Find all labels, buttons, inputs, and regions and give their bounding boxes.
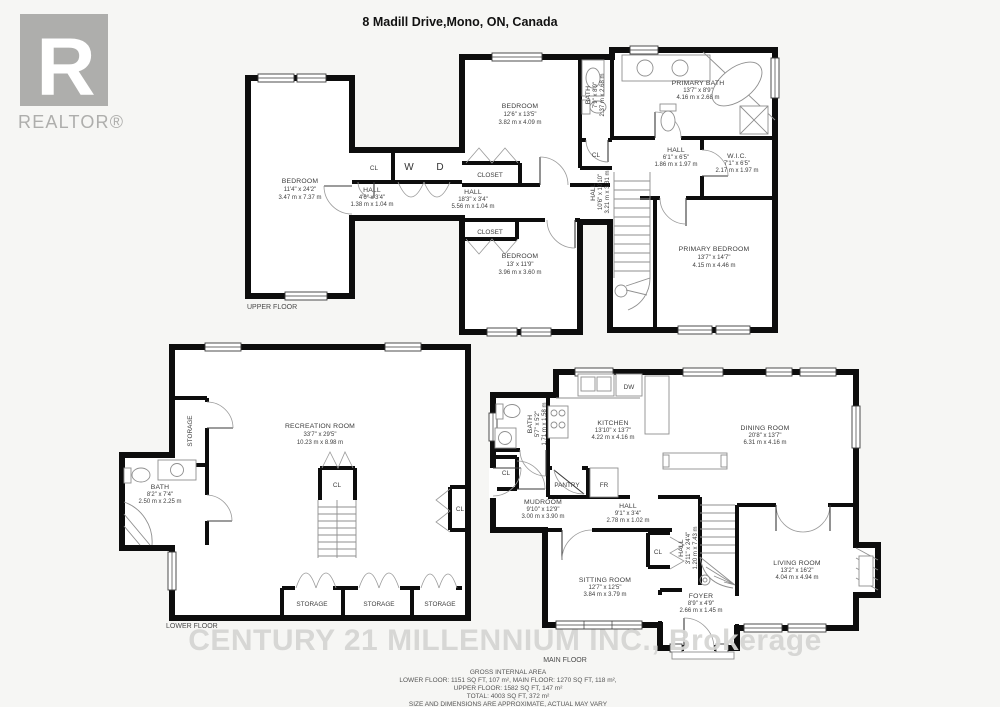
window	[800, 368, 836, 376]
window	[297, 74, 326, 82]
svg-text:4.15 m x 4.46 m: 4.15 m x 4.46 m	[692, 263, 735, 269]
svg-text:8'9" x 4'9": 8'9" x 4'9"	[688, 601, 714, 607]
window	[716, 326, 750, 334]
dryer-label: D	[436, 162, 443, 173]
svg-text:4.16 m x 2.68 m: 4.16 m x 2.68 m	[676, 95, 719, 101]
svg-text:7'1" x 6'5": 7'1" x 6'5"	[724, 161, 750, 167]
svg-text:PRIMARY BATH: PRIMARY BATH	[672, 80, 725, 87]
svg-text:HALL: HALL	[590, 183, 597, 201]
svg-text:12'7" x 12'5": 12'7" x 12'5"	[589, 585, 622, 591]
closet-label: CLOSET	[477, 229, 503, 236]
svg-text:1.20 m x 7.43 m: 1.20 m x 7.43 m	[693, 526, 699, 569]
svg-text:BEDROOM: BEDROOM	[502, 253, 539, 260]
window	[492, 53, 542, 61]
room-label-bedroom-top: BEDROOM 12'6" x 13'5" 3.82 m x 4.09 m	[498, 103, 541, 126]
floor-plan-page: R REALTOR® 8 Madill Drive,Mono, ON, Cana…	[0, 0, 1000, 707]
svg-text:HALL: HALL	[464, 189, 482, 196]
closet-label: CL	[333, 482, 342, 489]
svg-text:HALL: HALL	[678, 539, 685, 557]
svg-text:20'8" x 13'7": 20'8" x 13'7"	[749, 433, 782, 439]
svg-text:18'3" x 3'4": 18'3" x 3'4"	[458, 197, 488, 203]
pantry-label: PANTRY	[554, 482, 580, 489]
realtor-logo-r: R	[36, 22, 95, 113]
storage-label: STORAGE	[363, 601, 394, 608]
svg-text:13'10" x 13'7": 13'10" x 13'7"	[595, 428, 631, 434]
svg-text:HALL: HALL	[619, 503, 637, 510]
footer-line-1: LOWER FLOOR: 1151 SQ FT, 107 m², MAIN FL…	[399, 677, 616, 684]
svg-text:5.56 m x 1.04 m: 5.56 m x 1.04 m	[451, 204, 494, 210]
svg-text:13'7" x 8'9": 13'7" x 8'9"	[683, 88, 713, 94]
svg-text:10'6" x 10'10": 10'6" x 10'10"	[598, 174, 604, 210]
svg-text:2.37 m x 2.68 m: 2.37 m x 2.68 m	[600, 73, 606, 116]
storage-label: STORAGE	[296, 601, 327, 608]
window	[678, 326, 712, 334]
storage-label: STORAGE	[424, 601, 455, 608]
footer-disclaimer: SIZE AND DIMENSIONS ARE APPROXIMATE, ACT…	[409, 701, 608, 707]
upper-floor-label: UPPER FLOOR	[247, 304, 297, 311]
realtor-logo-icon: R REALTOR®	[18, 14, 124, 132]
svg-text:1.71 m x 1.58 m: 1.71 m x 1.58 m	[542, 402, 548, 445]
svg-text:RECREATION ROOM: RECREATION ROOM	[285, 423, 355, 430]
svg-text:13' x 11'9": 13' x 11'9"	[507, 262, 534, 268]
svg-text:3.96 m x 3.60 m: 3.96 m x 3.60 m	[498, 270, 541, 276]
buffet-counter	[663, 453, 727, 469]
closet-label: CL	[370, 165, 379, 172]
washer-label: W	[404, 162, 414, 173]
svg-text:KITCHEN: KITCHEN	[597, 420, 628, 427]
svg-text:13'7" x 14'7": 13'7" x 14'7"	[698, 255, 731, 261]
svg-text:LIVING ROOM: LIVING ROOM	[773, 560, 821, 567]
svg-text:9'10" x 12'9": 9'10" x 12'9"	[527, 507, 560, 513]
vanity-sink-icon	[158, 460, 196, 480]
closet-label: CL	[592, 152, 601, 159]
window	[168, 552, 176, 590]
window	[385, 343, 421, 351]
window	[205, 343, 241, 351]
svg-text:8'2" x 7'4": 8'2" x 7'4"	[147, 492, 173, 498]
svg-text:3.84 m x 3.79 m: 3.84 m x 3.79 m	[583, 592, 626, 598]
double-sink-icon	[622, 55, 710, 81]
vanity-sink-icon	[495, 428, 516, 448]
kitchen-sink-icon	[578, 374, 614, 396]
svg-text:4.22 m x 4.16 m: 4.22 m x 4.16 m	[591, 435, 634, 441]
svg-text:STORAGE: STORAGE	[187, 415, 194, 446]
svg-text:6'1" x 6'5": 6'1" x 6'5"	[663, 155, 689, 161]
window	[285, 292, 327, 300]
svg-text:BEDROOM: BEDROOM	[502, 103, 539, 110]
svg-text:BATH: BATH	[151, 484, 169, 491]
window	[771, 58, 779, 98]
svg-text:3.21 m x 3.31 m: 3.21 m x 3.31 m	[605, 170, 611, 213]
shower-icon	[740, 106, 768, 134]
svg-text:SITTING ROOM: SITTING ROOM	[579, 577, 631, 584]
footer-area-summary: GROSS INTERNAL AREA LOWER FLOOR: 1151 SQ…	[399, 669, 616, 707]
svg-text:2.17 m x 1.97 m: 2.17 m x 1.97 m	[715, 168, 758, 174]
svg-text:13'2" x 16'2": 13'2" x 16'2"	[781, 568, 814, 574]
window	[487, 328, 517, 336]
toilet-icon	[660, 104, 676, 131]
svg-text:4.04 m x 4.94 m: 4.04 m x 4.94 m	[775, 575, 818, 581]
window	[258, 74, 294, 82]
lower-floor: STORAGE BATH 8'2" x 7'4" 2.50 m x 2.25 m…	[122, 343, 468, 630]
svg-text:3.82 m x 4.09 m: 3.82 m x 4.09 m	[498, 120, 541, 126]
brokerage-watermark: CENTURY 21 MILLENNIUM INC., Brokerage	[188, 624, 822, 657]
closet-label: CLOSET	[477, 172, 503, 179]
svg-text:33'7" x 29'5": 33'7" x 29'5"	[304, 432, 337, 438]
svg-text:1.38 m x 1.04 m: 1.38 m x 1.04 m	[350, 202, 393, 208]
svg-text:BATH: BATH	[585, 86, 592, 104]
room-label-mudroom: MUDROOM 9'10" x 12'9" 3.00 m x 3.90 m	[521, 499, 564, 520]
room-label-storage-side: STORAGE	[187, 415, 194, 446]
window	[630, 46, 658, 54]
window	[766, 368, 792, 376]
svg-text:2.78 m x 1.02 m: 2.78 m x 1.02 m	[606, 518, 649, 524]
window	[683, 368, 723, 376]
upper-floor: BEDROOM 11'4" x 24'2" 3.47 m x 7.37 m CL…	[247, 46, 779, 336]
svg-text:6.31 m x 4.16 m: 6.31 m x 4.16 m	[743, 440, 786, 446]
page-title: 8 Madill Drive,Mono, ON, Canada	[362, 15, 558, 29]
main-floor-label: MAIN FLOOR	[543, 657, 587, 664]
window	[852, 406, 860, 448]
footer-heading: GROSS INTERNAL AREA	[470, 669, 547, 676]
svg-text:1.86 m x 1.97 m: 1.86 m x 1.97 m	[654, 162, 697, 168]
svg-text:9'1" x 3'4": 9'1" x 3'4"	[615, 511, 641, 517]
toilet-icon	[124, 468, 150, 483]
main-floor: KITCHEN 13'10" x 13'7" 4.22 m x 4.16 m D…	[489, 368, 878, 664]
svg-text:4'6" x 3'4": 4'6" x 3'4"	[359, 195, 385, 201]
room-label-kitchen: KITCHEN 13'10" x 13'7" 4.22 m x 4.16 m	[591, 420, 634, 441]
floor-plan-canvas: R REALTOR® 8 Madill Drive,Mono, ON, Cana…	[0, 0, 1000, 707]
toilet-icon	[496, 404, 520, 419]
closet-label: CL	[654, 549, 663, 556]
svg-text:3.47 m x 7.37 m: 3.47 m x 7.37 m	[278, 195, 321, 201]
svg-text:FOYER: FOYER	[689, 593, 713, 600]
svg-text:BEDROOM: BEDROOM	[282, 178, 319, 185]
window	[521, 328, 551, 336]
svg-text:DINING ROOM: DINING ROOM	[740, 425, 789, 432]
realtor-logo-label: REALTOR®	[18, 112, 124, 132]
svg-text:2.50 m x 2.25 m: 2.50 m x 2.25 m	[138, 499, 181, 505]
svg-text:HALL: HALL	[363, 187, 381, 194]
svg-text:HALL: HALL	[667, 147, 685, 154]
dishwasher-label: DW	[624, 384, 636, 391]
svg-text:7'9" x 8'9": 7'9" x 8'9"	[593, 82, 599, 108]
footer-line-2: UPPER FLOOR: 1582 SQ FT, 147 m²	[454, 685, 564, 692]
svg-text:W.I.C.: W.I.C.	[727, 153, 747, 160]
footer-line-3: TOTAL: 4003 SQ FT, 372 m²	[467, 693, 550, 700]
svg-text:BATH: BATH	[527, 415, 534, 433]
svg-text:3'11" x 24'4": 3'11" x 24'4"	[686, 532, 692, 564]
svg-text:PRIMARY BEDROOM: PRIMARY BEDROOM	[679, 246, 750, 253]
svg-text:10.23 m x 8.98 m: 10.23 m x 8.98 m	[297, 440, 343, 446]
svg-text:5'7" x 5'2": 5'7" x 5'2"	[535, 411, 541, 437]
svg-text:11'4" x 24'2": 11'4" x 24'2"	[284, 187, 316, 193]
fridge-label: FR	[600, 482, 609, 489]
stove-icon	[548, 406, 568, 438]
svg-text:MUDROOM: MUDROOM	[524, 499, 562, 506]
closet-label: CL	[502, 470, 511, 477]
svg-text:3.00 m x 3.90 m: 3.00 m x 3.90 m	[521, 514, 564, 520]
closet-label: CL	[456, 506, 465, 513]
svg-text:12'6" x 13'5": 12'6" x 13'5"	[504, 112, 537, 118]
room-label-bedroom-left: BEDROOM 11'4" x 24'2" 3.47 m x 7.37 m	[278, 178, 321, 201]
svg-text:2.66 m x 1.45 m: 2.66 m x 1.45 m	[679, 608, 722, 614]
